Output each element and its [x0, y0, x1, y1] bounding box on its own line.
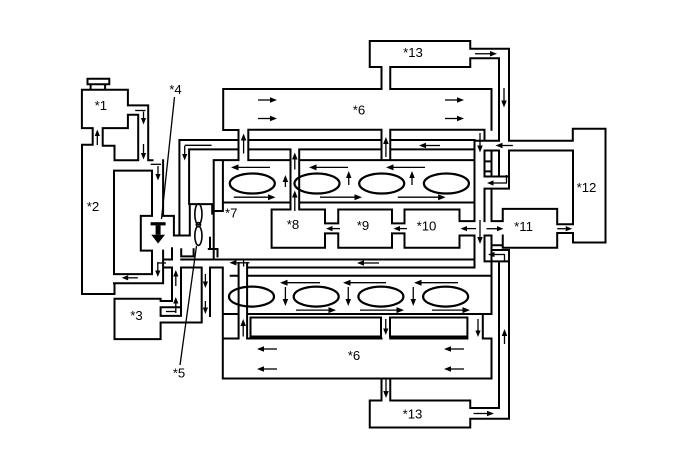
svg-text:*5: *5: [173, 366, 185, 381]
svg-text:*3: *3: [130, 308, 142, 323]
svg-text:*13: *13: [403, 407, 423, 422]
svg-text:*1: *1: [95, 98, 107, 113]
svg-text:*4: *4: [169, 82, 181, 97]
svg-text:*10: *10: [417, 219, 437, 234]
svg-text:*6: *6: [348, 348, 360, 363]
svg-text:*11: *11: [514, 219, 533, 234]
svg-text:*12: *12: [577, 180, 597, 195]
svg-text:*2: *2: [87, 199, 99, 214]
svg-text:*7: *7: [225, 206, 237, 221]
svg-text:*6: *6: [353, 102, 365, 117]
svg-text:*9: *9: [357, 218, 369, 233]
svg-text:*13: *13: [403, 45, 423, 60]
svg-text:*8: *8: [287, 217, 299, 232]
